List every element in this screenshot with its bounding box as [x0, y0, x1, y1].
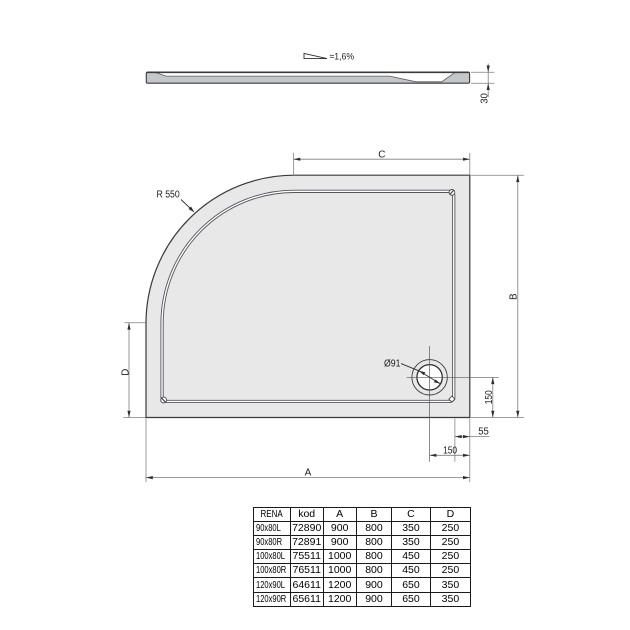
svg-text:D: D: [120, 369, 131, 376]
svg-text:30: 30: [479, 93, 490, 104]
svg-text:55: 55: [478, 426, 489, 437]
svg-text:150: 150: [484, 390, 495, 404]
svg-text:C: C: [378, 149, 385, 160]
svg-text:R 550: R 550: [157, 190, 181, 201]
svg-text:A: A: [305, 468, 312, 479]
svg-text:B: B: [509, 293, 520, 300]
svg-text:150: 150: [443, 445, 457, 456]
svg-text:≈1,6%: ≈1,6%: [330, 51, 355, 62]
svg-text:Ø91: Ø91: [384, 359, 401, 370]
